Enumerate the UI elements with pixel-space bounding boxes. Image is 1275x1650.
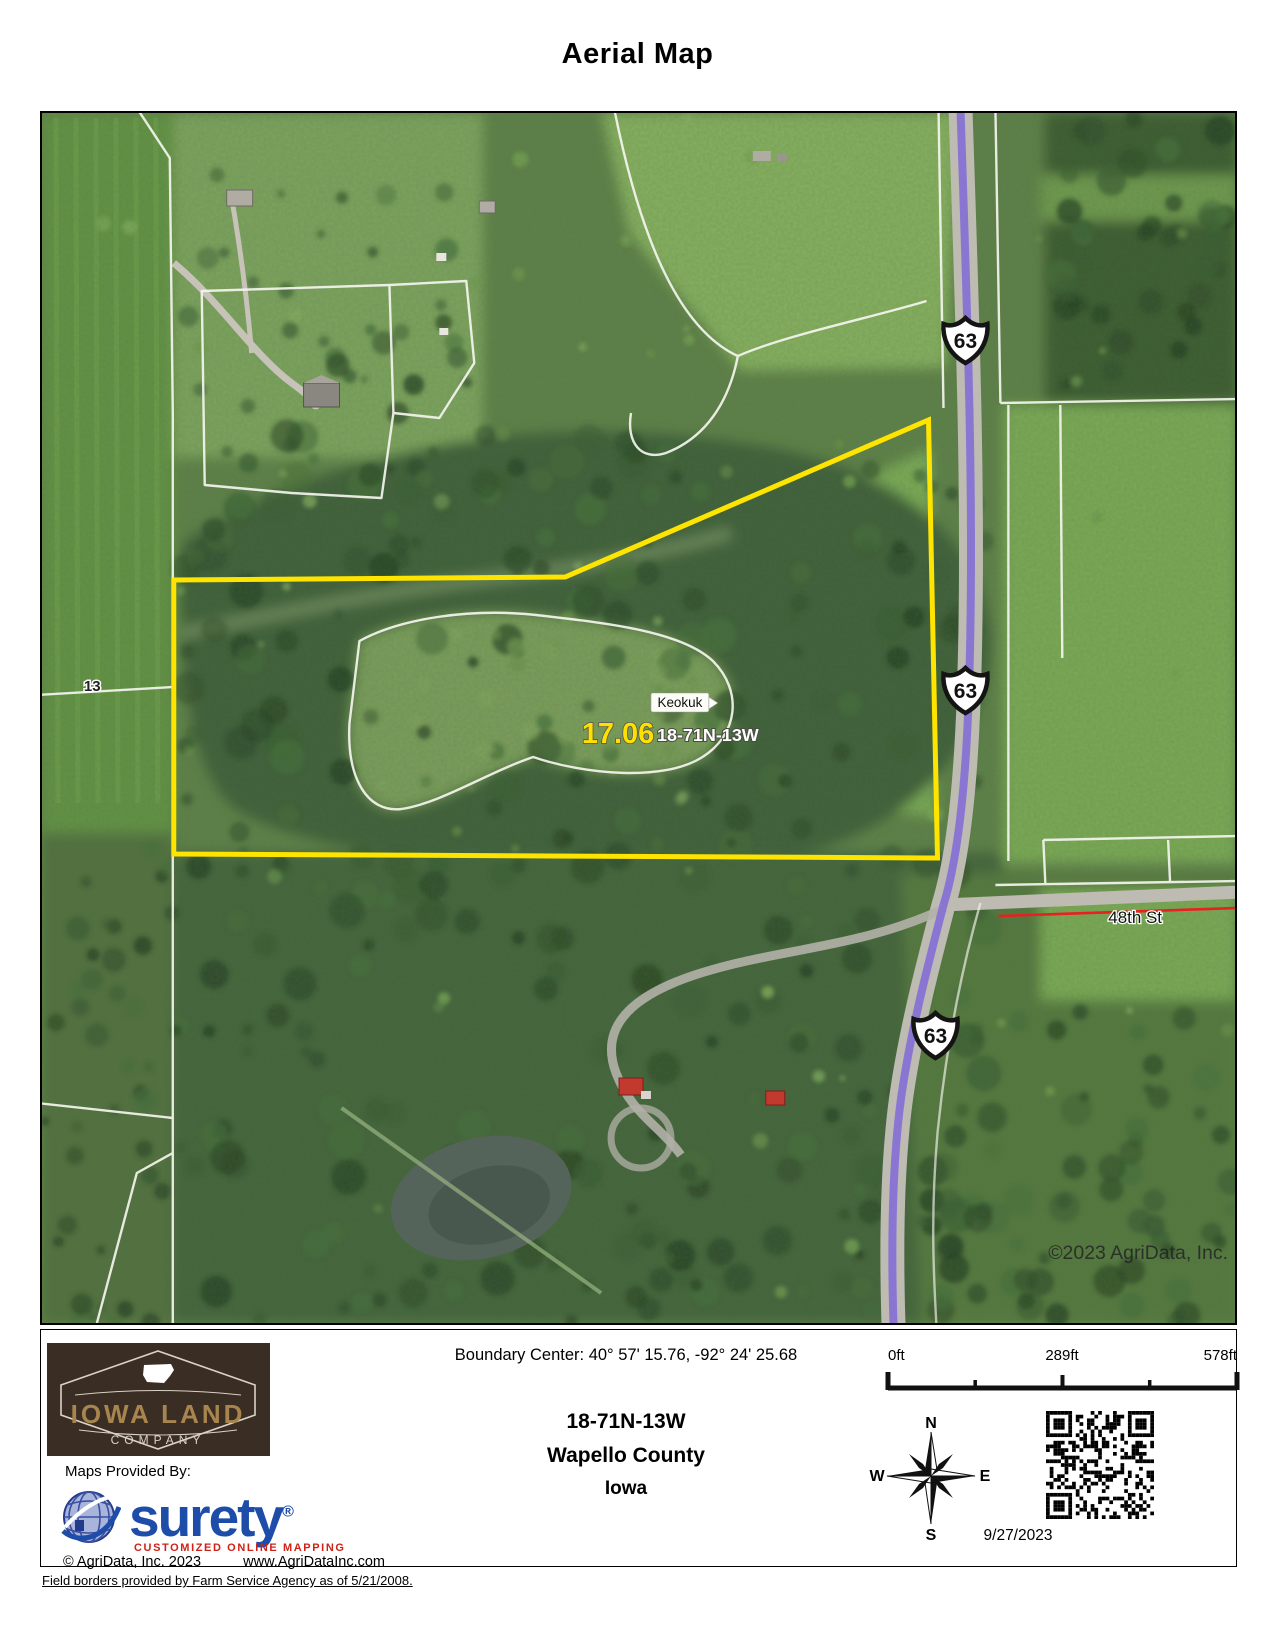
compass-west-label: W (869, 1468, 885, 1485)
scale-bar: 0ft 289ft 578ft (884, 1344, 1241, 1406)
aerial-photo: Keokuk 13 17.06 18-71N-13W 48th St ©2023… (42, 113, 1235, 1323)
surety-name-text: surety (129, 1486, 282, 1548)
page-title: Aerial Map (0, 38, 1275, 71)
scale-bar-line (888, 1372, 1237, 1390)
town-label: Keokuk (651, 693, 718, 712)
compass-east-label: E (980, 1468, 991, 1485)
svg-text:63: 63 (954, 680, 977, 703)
map-watermark: ©2023 AgriData, Inc. (1048, 1242, 1228, 1264)
iowa-state-icon (143, 1364, 174, 1383)
field-borders-note: Field borders provided by Farm Service A… (42, 1573, 413, 1588)
maps-provided-by-label: Maps Provided By: (65, 1463, 191, 1480)
surety-globe-icon (61, 1487, 121, 1547)
township-range-section: 18-71N-13W (426, 1410, 826, 1434)
section-number-label: 13 (84, 678, 101, 695)
iowa-land-company-logo: IOWA LAND COMPANY (47, 1343, 270, 1456)
parcel-acres-label: 17.06 (582, 718, 654, 750)
map-date: 9/27/2023 (903, 1527, 1133, 1545)
logo-flourish-top (75, 1391, 241, 1396)
scale-label-mid: 289ft (1045, 1347, 1079, 1364)
street-name-label: 48th St (1108, 908, 1162, 927)
boundary-center-text: Boundary Center: 40° 57' 15.76, -92° 24'… (306, 1346, 946, 1365)
agridata-website: www.AgriDataInc.com (243, 1554, 385, 1570)
location-block: 18-71N-13W Wapello County Iowa (426, 1410, 826, 1500)
surety-registered-mark: ® (282, 1504, 294, 1521)
state-name: Iowa (426, 1478, 826, 1500)
scale-label-start: 0ft (888, 1347, 906, 1364)
scale-label-end: 578ft (1204, 1347, 1238, 1364)
county-name: Wapello County (426, 1444, 826, 1468)
svg-text:63: 63 (954, 330, 977, 353)
aerial-map-page: Aerial Map (0, 0, 1275, 1650)
logo-line1: IOWA LAND (71, 1399, 246, 1429)
parcel-trs-label: 18-71N-13W (657, 725, 759, 745)
compass-needles (887, 1432, 975, 1524)
agridata-credit-row: © AgriData, Inc. 2023 www.AgriDataInc.co… (63, 1554, 385, 1570)
surety-wordmark: surety® (129, 1490, 294, 1545)
qr-code (1046, 1411, 1154, 1519)
footer-panel: IOWA LAND COMPANY Boundary Center: 40° 5… (40, 1329, 1237, 1567)
compass-rose: N S W E (869, 1416, 993, 1542)
aerial-map-canvas: Keokuk 13 17.06 18-71N-13W 48th St ©2023… (40, 111, 1237, 1325)
svg-text:Keokuk: Keokuk (657, 695, 702, 710)
surety-tagline: CUSTOMIZED ONLINE MAPPING (134, 1542, 346, 1554)
compass-north-label: N (925, 1416, 937, 1432)
svg-text:63: 63 (924, 1025, 947, 1048)
logo-line2: COMPANY (111, 1433, 206, 1447)
agridata-copyright: © AgriData, Inc. 2023 (63, 1554, 201, 1570)
